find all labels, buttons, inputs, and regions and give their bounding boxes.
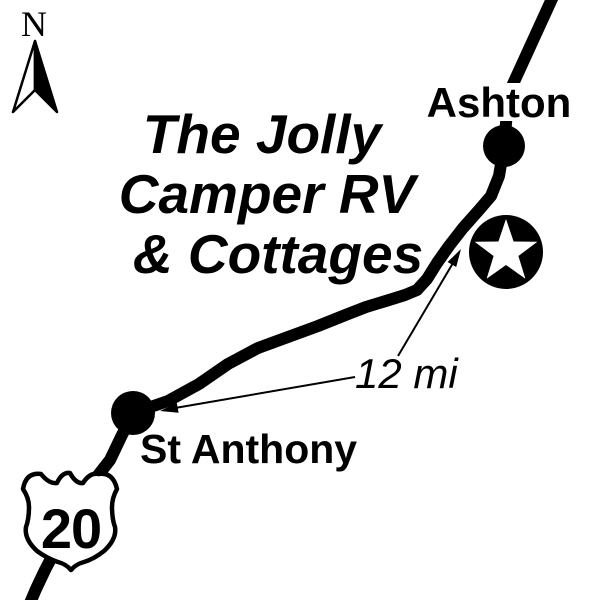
st-anthony-label: St Anthony: [140, 426, 357, 472]
title-line-3: & Cottages: [133, 223, 423, 285]
north-arrow: N: [13, 4, 57, 112]
destination-star-marker: [469, 215, 543, 289]
north-arrow-icon: [13, 41, 35, 112]
north-label: N: [21, 4, 47, 44]
route-shield-number: 20: [41, 497, 101, 560]
title-line-2: Camper RV: [119, 163, 420, 225]
ashton-label: Ashton: [427, 79, 572, 126]
us-route-20-shield: 20: [23, 473, 117, 570]
title-line-1: The Jolly: [143, 103, 384, 165]
distance-label: 12 mi: [355, 350, 459, 397]
directions-map: 20 N The Jolly Camper RV & Cottages Asht…: [0, 0, 600, 600]
ashton-town-dot: [483, 125, 525, 167]
map-title: The Jolly Camper RV & Cottages: [119, 103, 423, 285]
